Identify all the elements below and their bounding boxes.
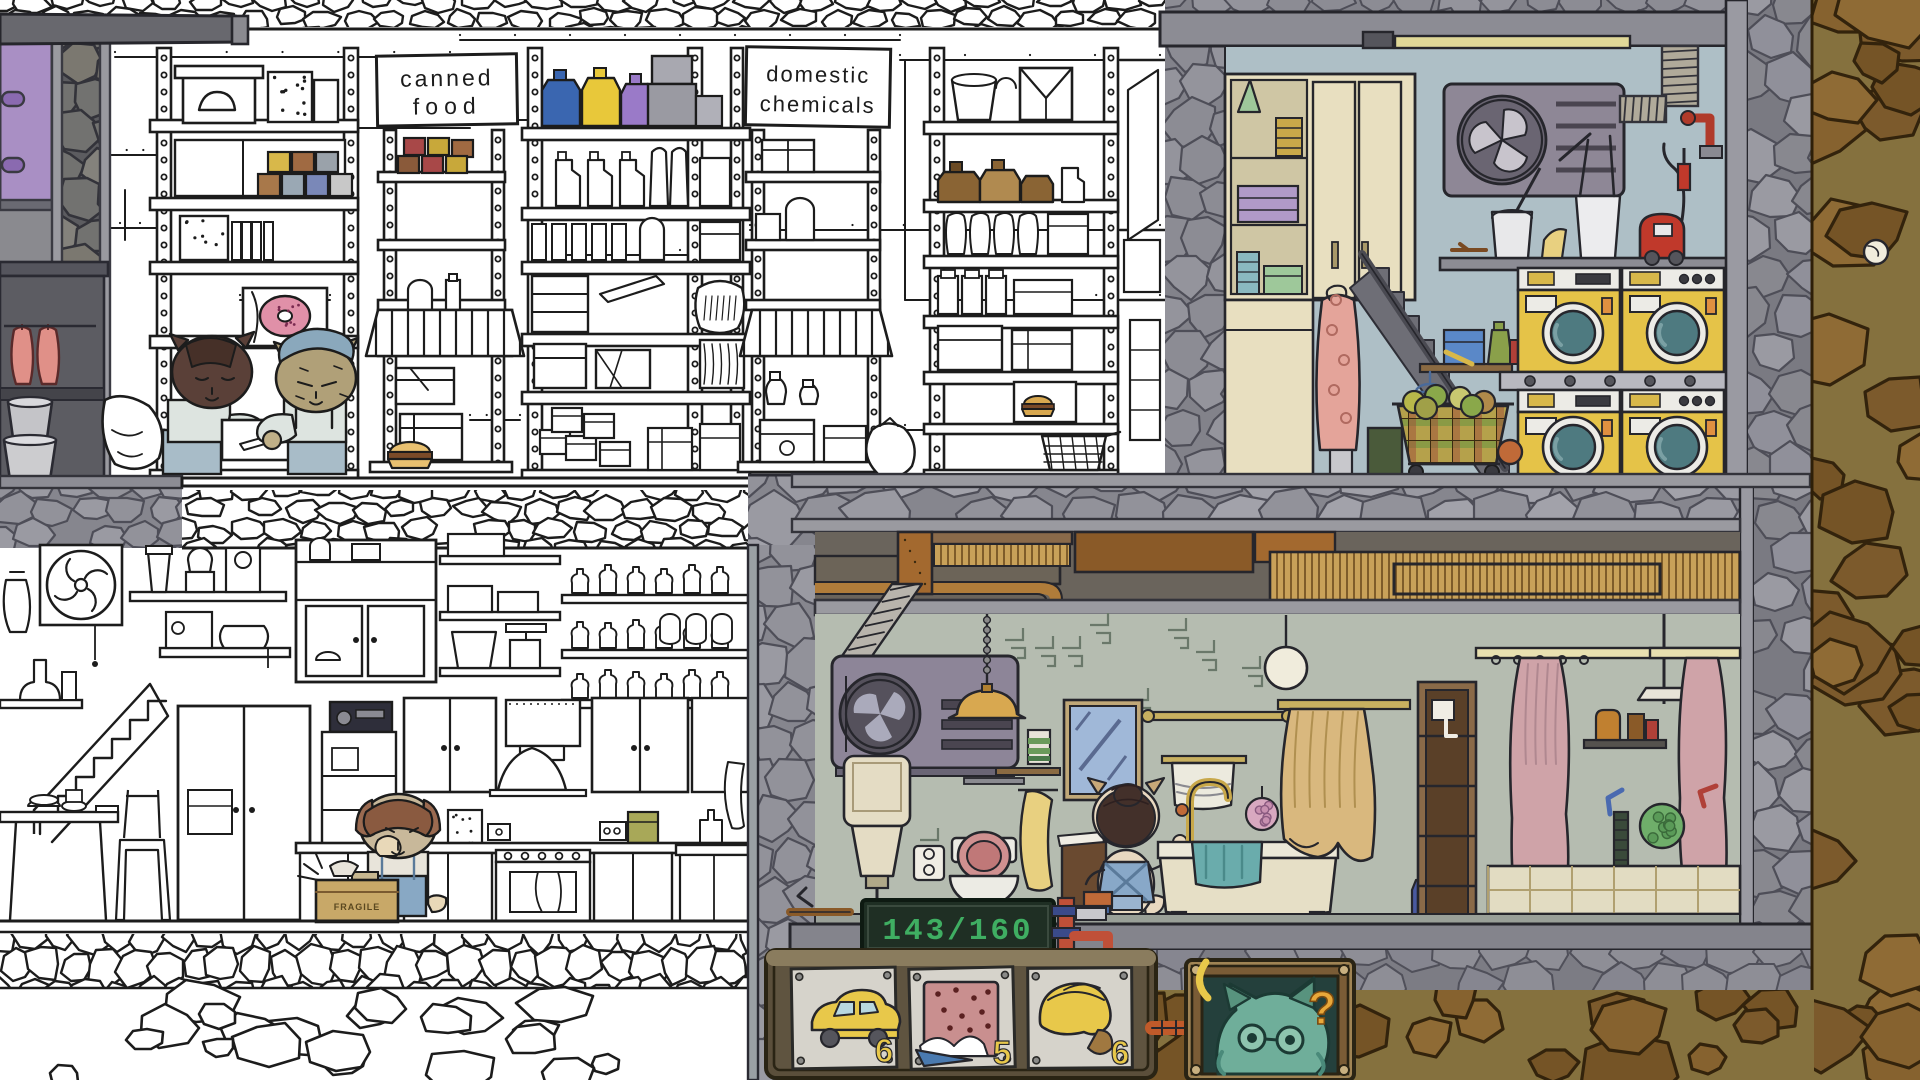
svg-text:5: 5	[993, 1034, 1011, 1071]
svg-text:chemicals: chemicals	[760, 91, 876, 118]
svg-text:food: food	[413, 92, 482, 119]
svg-text:6: 6	[1111, 1034, 1129, 1071]
svg-text:canned: canned	[400, 64, 494, 92]
svg-text:143/160: 143/160	[882, 914, 1033, 949]
svg-text:FRAGILE: FRAGILE	[334, 902, 381, 912]
svg-text:?: ?	[1308, 982, 1336, 1034]
svg-text:6: 6	[875, 1032, 893, 1069]
svg-text:domestic: domestic	[766, 61, 870, 88]
